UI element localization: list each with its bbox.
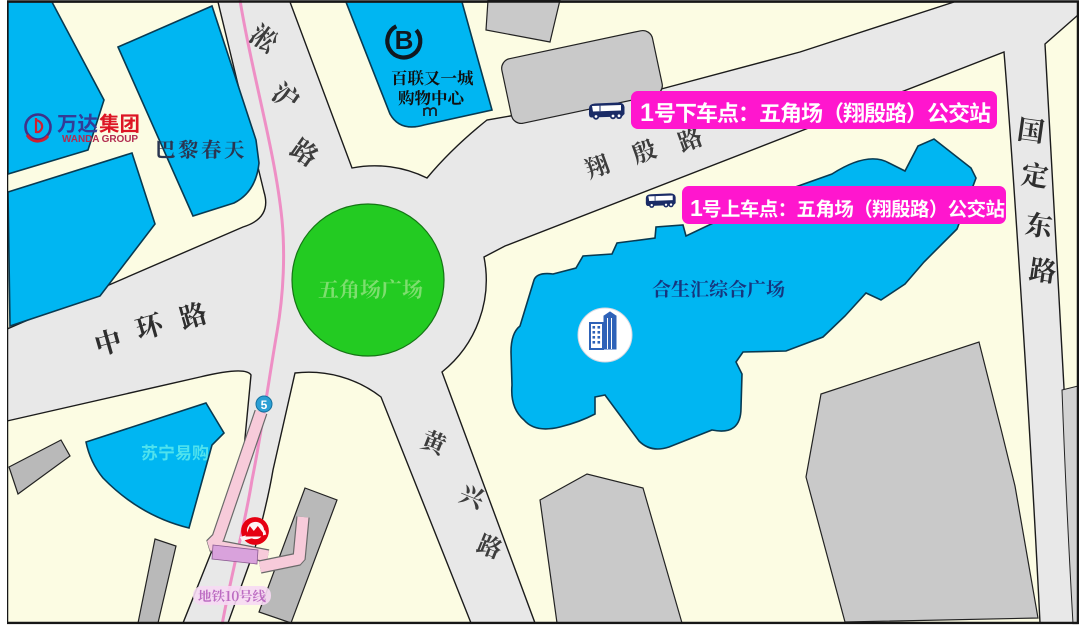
svg-text:WANDA GROUP: WANDA GROUP bbox=[62, 134, 138, 145]
svg-text:5: 5 bbox=[261, 398, 268, 412]
svg-text:B: B bbox=[395, 25, 414, 55]
svg-text:1: 1 bbox=[690, 195, 703, 221]
svg-text:1: 1 bbox=[640, 99, 654, 127]
